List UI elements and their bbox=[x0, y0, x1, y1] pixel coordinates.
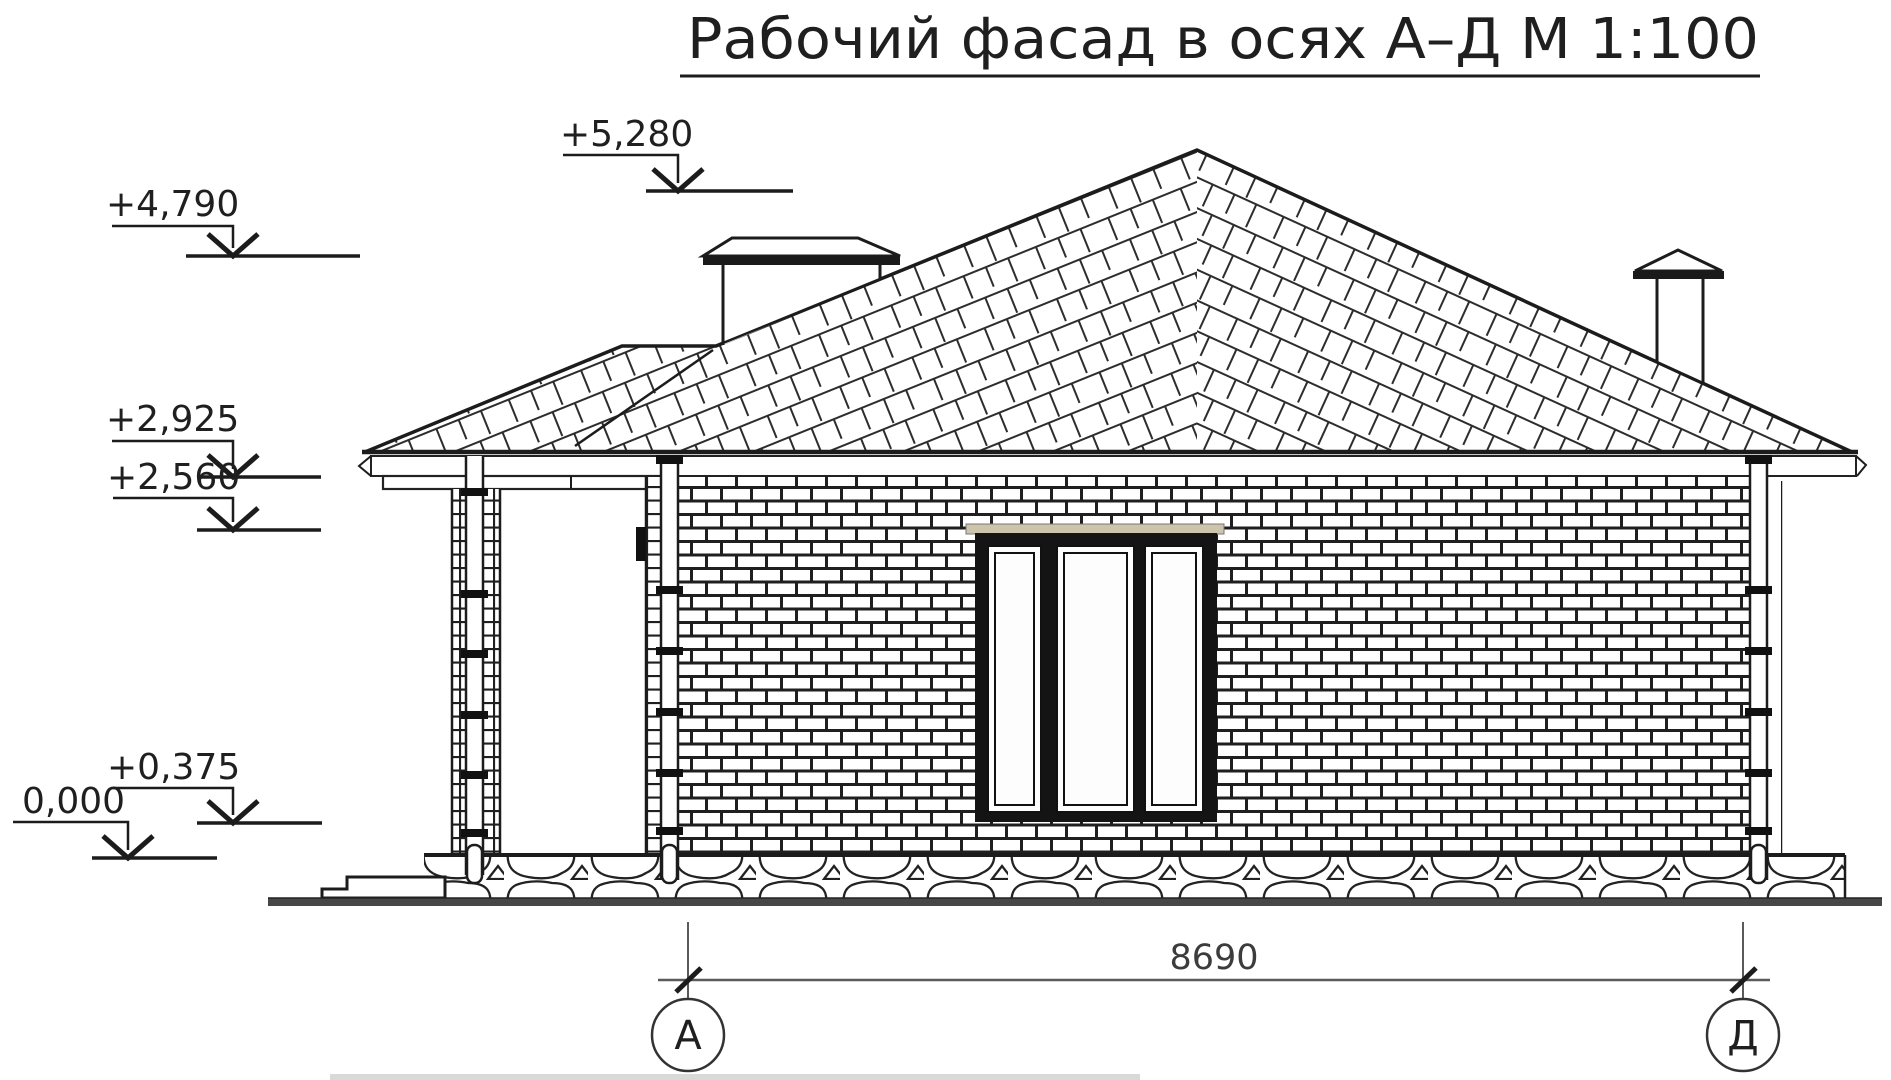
pipe-clamp bbox=[1745, 708, 1772, 716]
pipe-clamp bbox=[461, 650, 488, 658]
elevation-label: 0,000 bbox=[22, 781, 125, 822]
pane-glass bbox=[1057, 546, 1134, 812]
porch-beam bbox=[383, 476, 663, 489]
foundation bbox=[424, 855, 1845, 898]
chimney-cap bbox=[703, 238, 900, 256]
hip-roof bbox=[365, 150, 1852, 452]
axis-circle-d: Д bbox=[1707, 999, 1779, 1071]
fascia-end-cap-left bbox=[359, 456, 371, 476]
elevation-label: +5,280 bbox=[560, 114, 693, 155]
triple-window bbox=[966, 524, 1224, 822]
pipe-clamp bbox=[656, 455, 683, 464]
elevation-label: +0,375 bbox=[107, 747, 240, 788]
screenshot-edge-artifact bbox=[330, 1074, 1140, 1080]
pipe-body bbox=[1750, 456, 1767, 880]
pipe-clamp bbox=[656, 586, 683, 594]
porch-step bbox=[322, 877, 445, 898]
pipe-clamp bbox=[461, 711, 488, 719]
pipe-clamp bbox=[656, 647, 683, 655]
pipe-body bbox=[466, 456, 483, 875]
elevation-label: +2,925 bbox=[106, 399, 239, 440]
ground bbox=[268, 898, 1882, 906]
facade-drawing-sheet: Рабочий фасад в осях А–Д М 1:100 +5,280 … bbox=[0, 0, 1891, 1080]
dimension-8690: 8690 bbox=[658, 922, 1770, 998]
pipe-foot bbox=[467, 845, 482, 883]
axis-label: А bbox=[674, 1013, 702, 1059]
elevation-leader bbox=[113, 498, 233, 522]
pipe-clamp bbox=[461, 771, 488, 779]
pipe-body bbox=[661, 456, 678, 880]
elevation-mark-2560: +2,560 bbox=[107, 457, 321, 530]
wall-mounted-box bbox=[636, 527, 646, 561]
window-pane-right bbox=[1145, 546, 1203, 812]
pane-glass bbox=[1145, 546, 1203, 812]
downpipe-left bbox=[656, 455, 683, 883]
window-pane-left bbox=[988, 546, 1041, 812]
axis-label: Д bbox=[1727, 1013, 1758, 1059]
elevation-mark-4790: +4,790 bbox=[106, 184, 360, 256]
pipe-clamp bbox=[1745, 647, 1772, 655]
chimney-cap-band bbox=[1633, 271, 1724, 279]
elevation-mark-0375: +0,375 bbox=[107, 747, 322, 823]
fascia-board bbox=[371, 456, 1856, 476]
pipe-foot bbox=[1751, 845, 1766, 883]
ground-band bbox=[268, 898, 1882, 906]
pipe-clamp bbox=[461, 829, 488, 837]
pipe-foot bbox=[662, 845, 677, 883]
elevation-label: +2,560 bbox=[107, 457, 240, 498]
window-lintel bbox=[966, 524, 1224, 534]
pipe-clamp bbox=[1745, 827, 1772, 835]
pipe-clamp bbox=[1745, 586, 1772, 594]
pipe-clamp bbox=[1745, 769, 1772, 777]
elevation-mark-0000: 0,000 bbox=[13, 781, 217, 858]
eave-fascia bbox=[359, 452, 1866, 476]
beam bbox=[383, 476, 663, 489]
elevation-leader bbox=[113, 788, 233, 815]
window-pane-center bbox=[1057, 546, 1134, 812]
facade-elevation-drawing: Рабочий фасад в осях А–Д М 1:100 +5,280 … bbox=[0, 0, 1891, 1080]
downpipe-pier bbox=[461, 456, 488, 883]
pipe-clamp bbox=[461, 590, 488, 598]
fascia-end-cap-right bbox=[1856, 456, 1866, 476]
dimension-value: 8690 bbox=[1169, 938, 1258, 978]
pipe-clamp bbox=[656, 769, 683, 777]
axis-circle-a: А bbox=[652, 999, 724, 1071]
elevation-mark-5280: +5,280 bbox=[560, 114, 793, 191]
chimney-cap bbox=[1635, 250, 1722, 271]
pipe-clamp bbox=[656, 827, 683, 835]
pipe-clamp bbox=[1745, 455, 1772, 464]
pipe-clamp bbox=[656, 708, 683, 716]
downpipe-right bbox=[1745, 455, 1772, 883]
rubble-foundation bbox=[424, 855, 1845, 898]
elevation-label: +4,790 bbox=[106, 184, 239, 225]
pipe-clamp bbox=[461, 488, 488, 496]
chimney-cap-band bbox=[703, 256, 900, 265]
drawing-title: Рабочий фасад в осях А–Д М 1:100 bbox=[687, 7, 1759, 72]
